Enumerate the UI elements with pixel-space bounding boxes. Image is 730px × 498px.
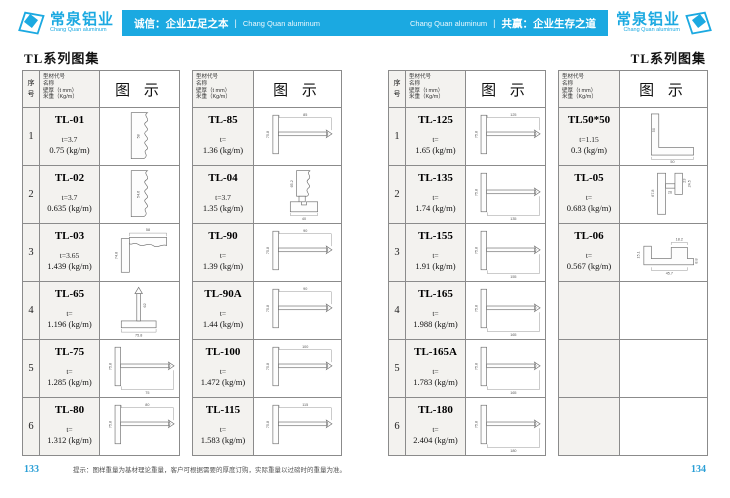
row-index: 6 — [389, 397, 405, 455]
page-header: 常泉铝业 Chang Quan aluminum 诚信：企业立足之本 | Cha… — [0, 0, 730, 46]
profile-spec: TL-75t=1.285 (kg/m) — [39, 339, 99, 397]
profile-thickness: t= — [193, 367, 253, 376]
svg-text:18.2: 18.2 — [675, 238, 682, 242]
profile-diagram: 75.8155 — [465, 223, 545, 281]
svg-text:75.8: 75.8 — [474, 363, 478, 370]
profile-thickness: t= — [40, 309, 99, 318]
index-header: 序号 — [389, 71, 405, 107]
profile-spec: TL-02t=3.70.635 (kg/m) — [39, 165, 99, 223]
profile-spec: TL-85t=1.36 (kg/m) — [193, 107, 253, 165]
diagram-header: 图 示 — [253, 71, 341, 107]
svg-text:75.8: 75.8 — [474, 131, 478, 138]
profile-code: TL-90 — [193, 230, 253, 242]
profile-thickness: t= — [406, 193, 465, 202]
banner-divider: | — [235, 18, 237, 28]
profile-thickness: t= — [193, 135, 253, 144]
row-index: 4 — [23, 281, 39, 339]
svg-text:58: 58 — [146, 228, 150, 232]
profile-weight: 1.91 (kg/m) — [406, 261, 465, 271]
svg-text:155: 155 — [510, 275, 516, 279]
svg-text:45.7: 45.7 — [665, 272, 672, 276]
profile-diagram — [619, 281, 707, 339]
profile-spec: TL-155t=1.91 (kg/m) — [405, 223, 465, 281]
svg-text:40: 40 — [302, 217, 306, 221]
profile-diagram: 75.8135 — [465, 165, 545, 223]
profile-thickness: t= — [406, 425, 465, 434]
profile-thickness: t= — [559, 251, 619, 260]
svg-text:75.8: 75.8 — [474, 189, 478, 196]
profile-thickness: t= — [40, 425, 99, 434]
svg-text:67.8: 67.8 — [651, 190, 655, 197]
profile-table: 型材代号名称壁厚（t mm）米重（Kg/m）图 示TL-85t=1.36 (kg… — [192, 70, 342, 456]
profile-code: TL-90A — [193, 288, 253, 300]
profile-spec — [559, 281, 619, 339]
svg-text:75.8: 75.8 — [108, 363, 112, 370]
profile-code: TL-05 — [559, 172, 619, 184]
page-number-left: 133 — [24, 464, 39, 475]
spec-header: 型材代号名称壁厚（t mm）米重（Kg/m） — [559, 71, 619, 107]
svg-text:75.8: 75.8 — [474, 305, 478, 312]
profile-spec: TL-05t=0.683 (kg/m) — [559, 165, 619, 223]
profile-diagram: 67.8262324.5 — [619, 165, 707, 223]
banner-slogan-left: 诚信：企业立足之本 | Chang Quan aluminum — [134, 16, 320, 31]
page-footer: 133 提示：图样重量为基材理论重量，客户可根据需要的厚度订购，实际重量以过磅时… — [0, 456, 730, 475]
profile-code: TL-180 — [406, 404, 465, 416]
svg-text:75.8: 75.8 — [108, 421, 112, 428]
profile-diagram: 5874.8 — [99, 223, 179, 281]
profile-diagram: 75.8125 — [465, 107, 545, 165]
profile-code: TL-155 — [406, 230, 465, 242]
profile-code: TL-80 — [40, 404, 99, 416]
svg-text:50: 50 — [670, 160, 674, 164]
svg-text:65.2: 65.2 — [290, 180, 294, 187]
profile-weight: 1.44 (kg/m) — [193, 319, 253, 329]
svg-text:100: 100 — [302, 345, 308, 349]
profile-spec: TL-100t=1.472 (kg/m) — [193, 339, 253, 397]
profile-diagram: 75.8100 — [253, 339, 341, 397]
brand-name-en: Chang Quan aluminum — [50, 28, 114, 34]
profile-thickness: t= — [406, 309, 465, 318]
row-index: 6 — [23, 397, 39, 455]
profile-diagram: 75.890 — [253, 223, 341, 281]
profile-thickness: t=3.7 — [40, 135, 99, 144]
profile-code: TL-06 — [559, 230, 619, 242]
row-index: 2 — [389, 165, 405, 223]
page-title-right: TL系列图集 — [631, 48, 706, 67]
profile-table: 型材代号名称壁厚（t mm）米重（Kg/m）图 示TL50*50t=1.150.… — [558, 70, 708, 456]
spec-header: 型材代号名称壁厚（t mm）米重（Kg/m） — [405, 71, 465, 107]
profile-code: TL-125 — [406, 114, 465, 126]
header-banner: 诚信：企业立足之本 | Chang Quan aluminum Chang Qu… — [122, 10, 608, 36]
profile-spec: TL-80t=1.312 (kg/m) — [39, 397, 99, 455]
profile-diagram: 75.875 — [99, 339, 179, 397]
svg-text:54.6: 54.6 — [136, 191, 140, 198]
profile-code: TL-04 — [193, 172, 253, 184]
row-index: 3 — [23, 223, 39, 281]
profile-spec: TL-90At=1.44 (kg/m) — [193, 281, 253, 339]
profile-diagram: 75.8165 — [465, 339, 545, 397]
spec-header: 型材代号名称壁厚（t mm）米重（Kg/m） — [39, 71, 99, 107]
profile-spec: TL-165At=1.783 (kg/m) — [405, 339, 465, 397]
profile-weight: 0.75 (kg/m) — [40, 145, 99, 155]
svg-text:75.8: 75.8 — [266, 421, 270, 428]
svg-text:26: 26 — [668, 191, 672, 195]
svg-text:80: 80 — [145, 403, 149, 407]
profile-thickness: t=3.7 — [40, 193, 99, 202]
row-index: 5 — [23, 339, 39, 397]
svg-text:75.8: 75.8 — [266, 305, 270, 312]
diagram-header: 图 示 — [99, 71, 179, 107]
svg-text:75.8: 75.8 — [266, 131, 270, 138]
profile-diagram: 65.240 — [253, 165, 341, 223]
svg-text:165: 165 — [510, 391, 516, 395]
svg-text:8.8: 8.8 — [694, 259, 698, 264]
row-index: 1 — [23, 107, 39, 165]
svg-text:125: 125 — [510, 113, 516, 117]
profile-diagram: 75.8115 — [253, 397, 341, 455]
profile-spec — [559, 339, 619, 397]
profile-thickness: t= — [193, 425, 253, 434]
svg-text:74.8: 74.8 — [114, 252, 118, 259]
profile-weight: 1.583 (kg/m) — [193, 435, 253, 445]
profile-weight: 1.39 (kg/m) — [193, 261, 253, 271]
profile-code: TL-75 — [40, 346, 99, 358]
profile-thickness: t= — [406, 135, 465, 144]
profile-code: TL-165 — [406, 288, 465, 300]
row-index: 4 — [389, 281, 405, 339]
banner-divider: | — [493, 18, 495, 28]
row-index: 5 — [389, 339, 405, 397]
profile-diagram: 5050 — [619, 107, 707, 165]
svg-text:115: 115 — [302, 403, 308, 407]
profile-spec — [559, 397, 619, 455]
profile-diagram: 75.8165 — [465, 281, 545, 339]
svg-text:15.1: 15.1 — [636, 251, 640, 258]
series-titles: TL系列图集 TL系列图集 — [0, 46, 730, 70]
brand-name-cn: 常泉铝业 — [50, 12, 114, 27]
profile-thickness: t=3.65 — [40, 251, 99, 260]
spec-header: 型材代号名称壁厚（t mm）米重（Kg/m） — [193, 71, 253, 107]
profile-thickness: t=1.15 — [559, 135, 619, 144]
profile-code: TL-135 — [406, 172, 465, 184]
brand-box-icon — [684, 7, 714, 40]
profile-weight: 0.567 (kg/m) — [559, 261, 619, 271]
svg-text:75.8: 75.8 — [135, 334, 142, 338]
brand-box-icon — [16, 7, 46, 40]
row-index: 2 — [23, 165, 39, 223]
profile-diagram: 75.885 — [253, 107, 341, 165]
brand-logo-left: 常泉铝业 Chang Quan aluminum — [16, 7, 114, 40]
profile-spec: TL-165t=1.988 (kg/m) — [405, 281, 465, 339]
svg-text:50: 50 — [652, 128, 656, 132]
svg-text:58: 58 — [136, 134, 140, 138]
svg-text:135: 135 — [510, 217, 516, 221]
svg-text:23: 23 — [682, 179, 686, 183]
profile-diagram: 54.6 — [99, 165, 179, 223]
row-index: 3 — [389, 223, 405, 281]
profile-thickness: t= — [406, 367, 465, 376]
profile-code: TL-165A — [406, 346, 465, 358]
diagram-header: 图 示 — [619, 71, 707, 107]
profile-weight: 1.196 (kg/m) — [40, 319, 99, 329]
index-header: 序号 — [23, 71, 39, 107]
profile-diagram — [619, 339, 707, 397]
profile-thickness: t= — [406, 251, 465, 260]
profile-weight: 1.36 (kg/m) — [193, 145, 253, 155]
footer-note: 提示：图样重量为基材理论重量，客户可根据需要的厚度订购，实际重量以过磅时的重量为… — [73, 464, 691, 474]
profile-weight: 1.65 (kg/m) — [406, 145, 465, 155]
svg-text:90: 90 — [303, 287, 307, 291]
svg-text:180: 180 — [510, 449, 516, 453]
profile-code: TL50*50 — [559, 114, 619, 126]
profile-diagram — [619, 397, 707, 455]
profile-diagram: 58 — [99, 107, 179, 165]
profile-spec: TL-115t=1.583 (kg/m) — [193, 397, 253, 455]
row-index: 1 — [389, 107, 405, 165]
profile-weight: 1.472 (kg/m) — [193, 377, 253, 387]
profile-table: 序号型材代号名称壁厚（t mm）米重（Kg/m）图 示1TL-01t=3.70.… — [22, 70, 180, 456]
profile-code: TL-03 — [40, 230, 99, 242]
profile-code: TL-115 — [193, 404, 253, 416]
profile-thickness: t= — [193, 251, 253, 260]
profile-spec: TL50*50t=1.150.3 (kg/m) — [559, 107, 619, 165]
svg-text:62: 62 — [143, 303, 147, 307]
catalog-spread: { "brand": { "name_cn": "常泉铝业", "name_en… — [0, 0, 730, 498]
profile-code: TL-01 — [40, 114, 99, 126]
profile-diagram: 75.8180 — [465, 397, 545, 455]
profile-spec: TL-06t=0.567 (kg/m) — [559, 223, 619, 281]
profile-code: TL-65 — [40, 288, 99, 300]
profile-spec: TL-65t=1.196 (kg/m) — [39, 281, 99, 339]
profile-code: TL-100 — [193, 346, 253, 358]
profile-weight: 1.74 (kg/m) — [406, 203, 465, 213]
brand-logo-right: 常泉铝业 Chang Quan aluminum — [616, 7, 714, 40]
profile-diagram: 75.890 — [253, 281, 341, 339]
profile-weight: 1.783 (kg/m) — [406, 377, 465, 387]
profile-spec: TL-180t=2.404 (kg/m) — [405, 397, 465, 455]
banner-slogan-right: Chang Quan aluminum | 共赢：企业生存之道 — [410, 16, 596, 31]
catalog-pages: 序号型材代号名称壁厚（t mm）米重（Kg/m）图 示1TL-01t=3.70.… — [0, 70, 730, 456]
svg-text:85: 85 — [303, 113, 307, 117]
profile-weight: 1.285 (kg/m) — [40, 377, 99, 387]
brand-name-en: Chang Quan aluminum — [623, 28, 680, 34]
profile-spec: TL-03t=3.651.439 (kg/m) — [39, 223, 99, 281]
profile-weight: 1.35 (kg/m) — [193, 203, 253, 213]
profile-weight: 1.439 (kg/m) — [40, 261, 99, 271]
brand-name-cn: 常泉铝业 — [616, 12, 680, 27]
profile-thickness: t= — [559, 193, 619, 202]
profile-spec: TL-135t=1.74 (kg/m) — [405, 165, 465, 223]
profile-weight: 1.988 (kg/m) — [406, 319, 465, 329]
svg-text:75.8: 75.8 — [266, 363, 270, 370]
profile-spec: TL-90t=1.39 (kg/m) — [193, 223, 253, 281]
profile-spec: TL-04t=3.71.35 (kg/m) — [193, 165, 253, 223]
profile-weight: 1.312 (kg/m) — [40, 435, 99, 445]
profile-weight: 0.635 (kg/m) — [40, 203, 99, 213]
profile-spec: TL-125t=1.65 (kg/m) — [405, 107, 465, 165]
svg-text:165: 165 — [510, 333, 516, 337]
profile-code: TL-85 — [193, 114, 253, 126]
page-number-right: 134 — [691, 464, 706, 475]
profile-weight: 0.3 (kg/m) — [559, 145, 619, 155]
catalog-page: 序号型材代号名称壁厚（t mm）米重（Kg/m）图 示1TL-125t=1.65… — [388, 70, 708, 456]
profile-weight: 0.683 (kg/m) — [559, 203, 619, 213]
svg-text:75.8: 75.8 — [474, 421, 478, 428]
profile-spec: TL-01t=3.70.75 (kg/m) — [39, 107, 99, 165]
svg-text:24.5: 24.5 — [687, 180, 691, 187]
profile-diagram: 18.215.18.845.7 — [619, 223, 707, 281]
profile-thickness: t=3.7 — [193, 193, 253, 202]
profile-thickness: t= — [193, 309, 253, 318]
profile-diagram: 75.880 — [99, 397, 179, 455]
profile-diagram: 6275.8 — [99, 281, 179, 339]
profile-weight: 2.404 (kg/m) — [406, 435, 465, 445]
page-title-left: TL系列图集 — [24, 48, 99, 67]
svg-text:75.8: 75.8 — [474, 247, 478, 254]
svg-text:90: 90 — [303, 229, 307, 233]
catalog-page: 序号型材代号名称壁厚（t mm）米重（Kg/m）图 示1TL-01t=3.70.… — [22, 70, 342, 456]
diagram-header: 图 示 — [465, 71, 545, 107]
profile-table: 序号型材代号名称壁厚（t mm）米重（Kg/m）图 示1TL-125t=1.65… — [388, 70, 546, 456]
svg-text:75.8: 75.8 — [266, 247, 270, 254]
profile-code: TL-02 — [40, 172, 99, 184]
profile-thickness: t= — [40, 367, 99, 376]
svg-text:75: 75 — [145, 391, 149, 395]
